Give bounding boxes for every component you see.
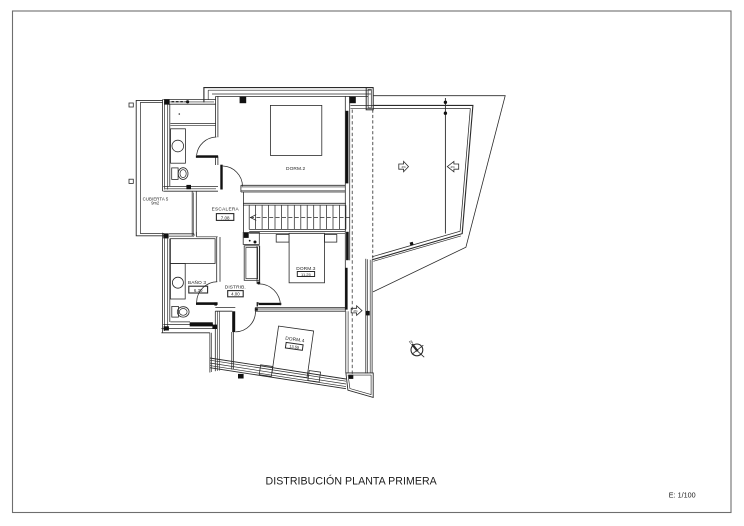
svg-text:9m2: 9m2 — [151, 200, 160, 205]
svg-text:2%: 2% — [451, 165, 456, 169]
svg-text:DORM.2: DORM.2 — [286, 166, 305, 172]
svg-text:2%: 2% — [353, 309, 358, 313]
svg-text:4.00: 4.00 — [231, 292, 240, 297]
svg-text:DISTRIBUCIÓN PLANTA PRIMERA: DISTRIBUCIÓN PLANTA PRIMERA — [266, 474, 438, 487]
svg-text:2%: 2% — [402, 165, 407, 169]
svg-text:E: 1/100: E: 1/100 — [669, 490, 696, 499]
svg-text:ESCALERA: ESCALERA — [212, 207, 240, 212]
svg-text:7.08: 7.08 — [221, 215, 230, 220]
svg-text:BAÑO 3: BAÑO 3 — [188, 279, 206, 286]
svg-text:11.25: 11.25 — [301, 272, 311, 277]
svg-text:DISTRIB.: DISTRIB. — [225, 284, 246, 290]
